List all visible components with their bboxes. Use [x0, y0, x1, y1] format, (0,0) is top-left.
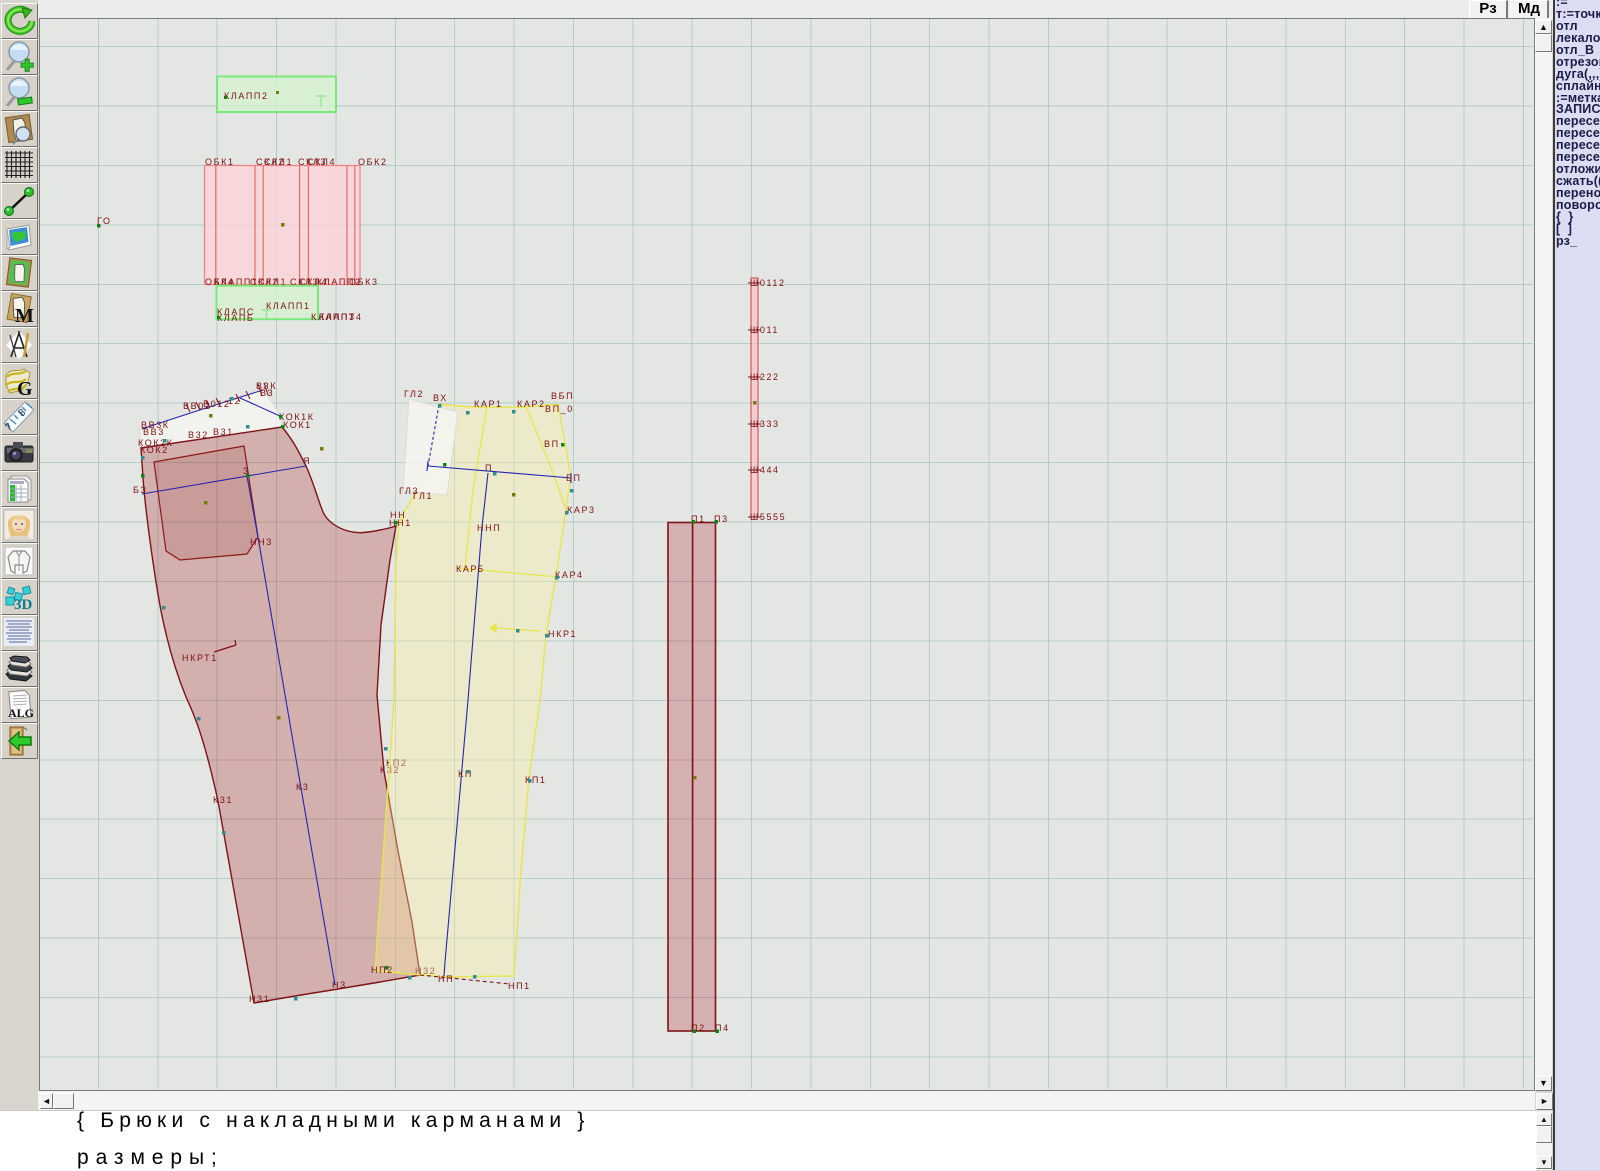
svg-text:3D: 3D: [14, 597, 33, 613]
svg-text:ВП: ВП: [544, 439, 560, 449]
svg-text:КАР1: КАР1: [474, 399, 503, 409]
svg-text:Н3: Н3: [332, 980, 347, 990]
svg-text:КОК2: КОК2: [140, 445, 169, 455]
svg-text:ННП: ННП: [477, 523, 501, 533]
svg-text:ОБК1: ОБК1: [205, 157, 235, 167]
svg-text:З: З: [243, 466, 250, 476]
svg-text:ГЛ1: ГЛ1: [413, 491, 433, 501]
svg-text:НП2: НП2: [371, 965, 394, 975]
svg-text:КП: КП: [458, 769, 473, 779]
svg-text:Ш222: Ш222: [750, 372, 780, 382]
svg-text:К31: К31: [213, 795, 233, 805]
svg-text:Я: Я: [303, 456, 311, 466]
svg-text:П: П: [485, 463, 493, 473]
svg-text:ВВ3: ВВ3: [143, 427, 165, 437]
svg-text:Ш0112: Ш0112: [750, 278, 786, 288]
svg-text:Ш333: Ш333: [750, 419, 780, 429]
svg-text:В31: В31: [213, 427, 234, 437]
svg-text:НКР1: НКР1: [548, 629, 577, 639]
svg-text:КОК1: КОК1: [283, 420, 312, 430]
svg-text:КАР3: КАР3: [567, 505, 596, 515]
svg-text:КАР5: КАР5: [456, 564, 485, 574]
svg-text:M: M: [15, 305, 34, 325]
svg-text:КЛАПП2: КЛАПП2: [224, 91, 269, 101]
svg-text:НП: НП: [438, 974, 454, 984]
svg-text:ALG: ALG: [8, 706, 34, 720]
svg-text:КЛАПТ4: КЛАПТ4: [319, 312, 363, 322]
svg-text:НН1: НН1: [389, 518, 412, 528]
svg-text:СКЛ4: СКЛ4: [307, 157, 336, 167]
svg-text:ВП_0: ВП_0: [545, 404, 574, 414]
svg-text:ОБК2: ОБК2: [358, 157, 388, 167]
svg-text:КЛАПБ: КЛАПБ: [217, 313, 254, 323]
svg-text:ВХ: ВХ: [433, 393, 448, 403]
svg-text:ОБК3: ОБК3: [349, 277, 379, 287]
svg-text:Н31: Н31: [249, 994, 270, 1004]
svg-text:КАР4: КАР4: [555, 570, 584, 580]
svg-text:ВБП: ВБП: [551, 391, 574, 401]
svg-text:КЛАПП1: КЛАПП1: [266, 301, 311, 311]
svg-text:В32: В32: [188, 430, 209, 440]
svg-text:К3: К3: [296, 782, 309, 792]
svg-text:БЗ: БЗ: [133, 485, 147, 495]
svg-text:КАР2: КАР2: [517, 399, 546, 409]
svg-text:НН3: НН3: [250, 537, 273, 547]
svg-text:G: G: [17, 378, 33, 397]
svg-text:Ш444: Ш444: [750, 465, 780, 475]
svg-text:СКЛ1: СКЛ1: [264, 157, 293, 167]
svg-text:БП: БП: [566, 473, 582, 483]
svg-text:НП1: НП1: [508, 981, 531, 991]
svg-text:НКРТ1: НКРТ1: [182, 653, 218, 663]
svg-text:Ш011: Ш011: [750, 325, 779, 335]
svg-text:Ш5555: Ш5555: [750, 512, 786, 522]
svg-text:ГЛ2: ГЛ2: [404, 389, 424, 399]
